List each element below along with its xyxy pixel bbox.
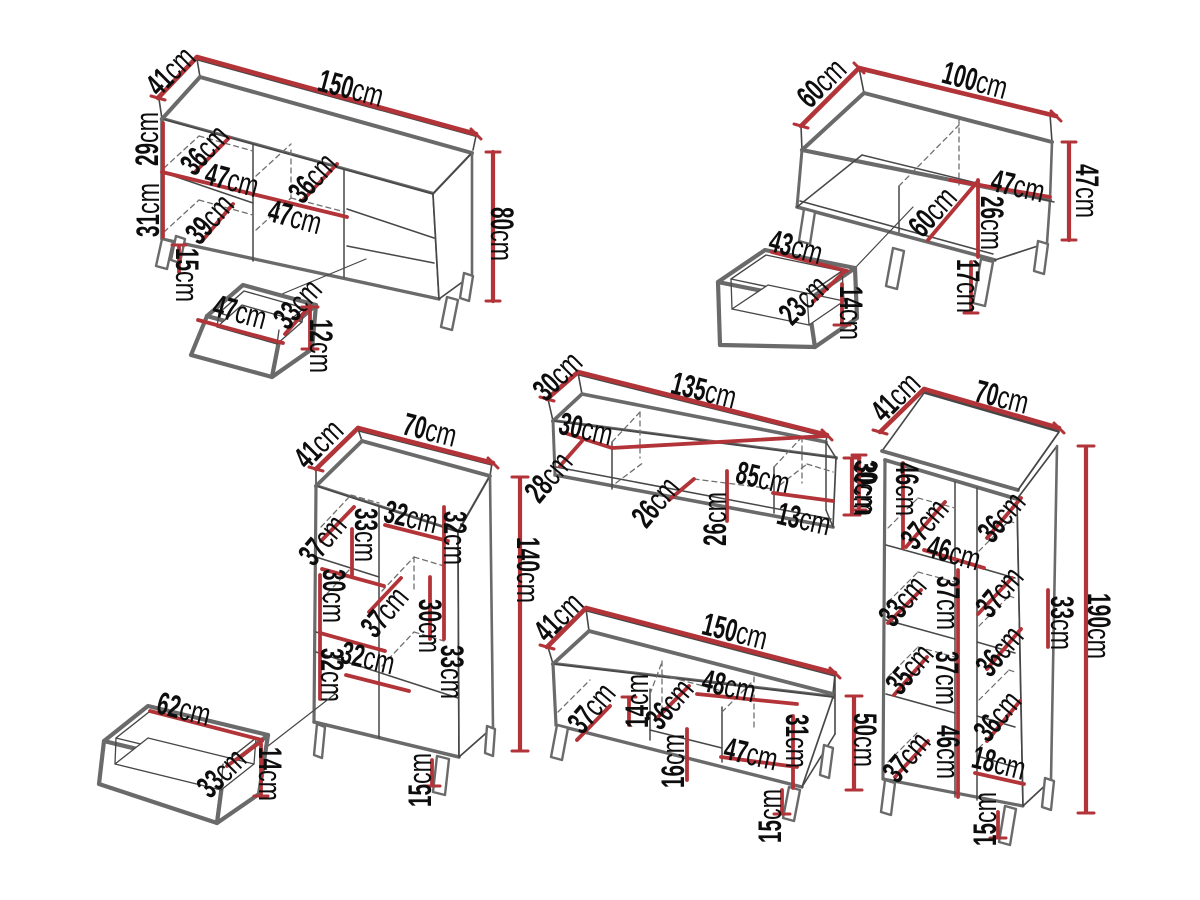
svg-text:14cm: 14cm	[252, 747, 288, 801]
svg-text:15cm: 15cm	[967, 792, 1003, 846]
svg-text:37cm: 37cm	[930, 576, 966, 630]
svg-text:140cm: 140cm	[510, 537, 546, 603]
svg-text:26cm: 26cm	[974, 196, 1010, 250]
svg-text:46cm: 46cm	[930, 725, 966, 779]
svg-text:15cm: 15cm	[752, 789, 788, 843]
svg-text:31cm: 31cm	[779, 714, 815, 768]
svg-text:33cm: 33cm	[1044, 596, 1080, 650]
svg-text:50cm: 50cm	[847, 713, 883, 767]
svg-text:30cm: 30cm	[316, 569, 352, 623]
svg-text:80cm: 80cm	[484, 207, 520, 261]
svg-text:33cm: 33cm	[434, 645, 470, 699]
svg-text:26cm: 26cm	[697, 492, 733, 546]
svg-text:16cm: 16cm	[655, 734, 691, 788]
svg-text:30cm: 30cm	[412, 599, 448, 653]
svg-text:30cm: 30cm	[848, 460, 884, 514]
svg-text:29cm: 29cm	[129, 112, 165, 166]
svg-text:33cm: 33cm	[348, 508, 384, 562]
svg-text:15cm: 15cm	[402, 753, 438, 807]
svg-text:17cm: 17cm	[950, 259, 986, 313]
svg-text:47cm: 47cm	[1069, 164, 1105, 218]
svg-text:31cm: 31cm	[130, 183, 166, 237]
svg-text:15cm: 15cm	[169, 248, 205, 302]
svg-text:190cm: 190cm	[1081, 593, 1117, 659]
svg-text:12cm: 12cm	[303, 319, 339, 373]
svg-text:14cm: 14cm	[833, 286, 869, 340]
svg-text:32cm: 32cm	[437, 511, 473, 565]
